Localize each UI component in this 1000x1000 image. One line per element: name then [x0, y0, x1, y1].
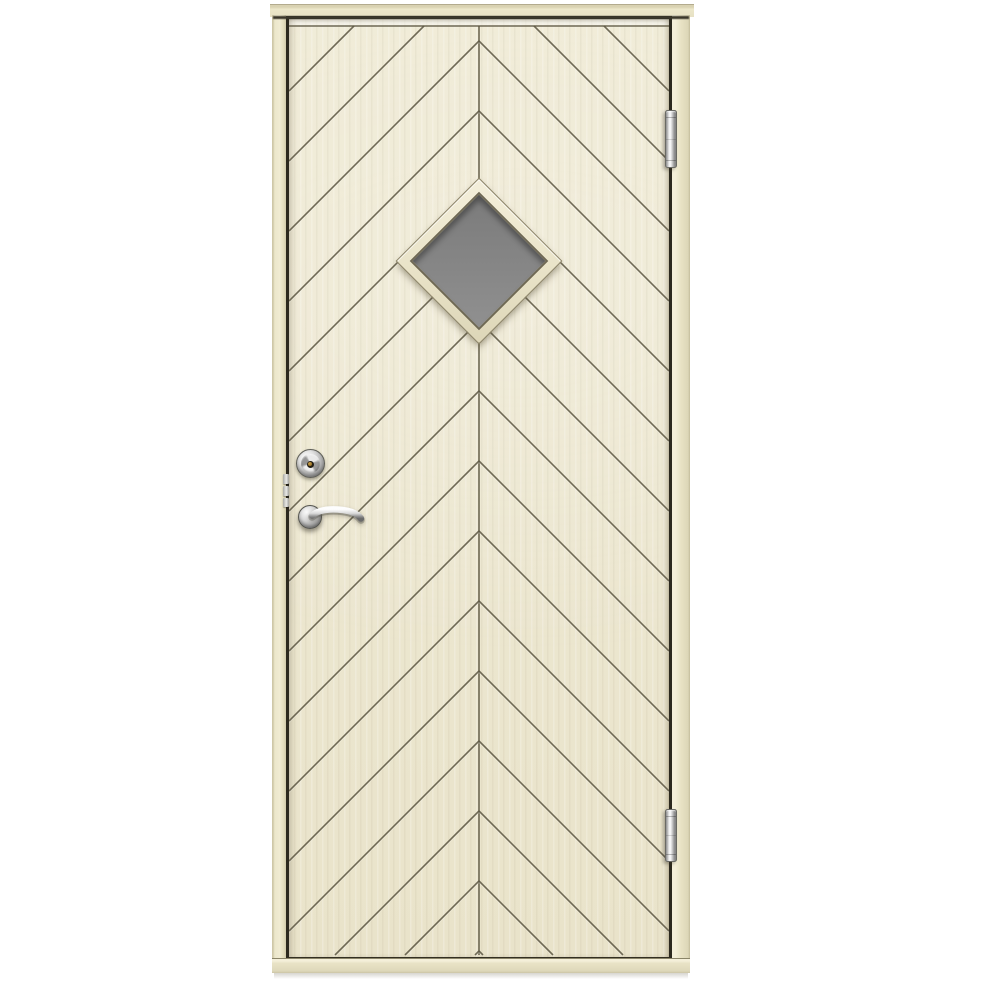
groove-line	[289, 322, 479, 512]
groove-line	[289, 531, 479, 721]
groove-line	[289, 461, 479, 651]
threshold-sill	[272, 958, 690, 973]
groove-line	[479, 532, 669, 722]
groove-line	[604, 26, 669, 91]
lever-handle	[283, 493, 373, 538]
groove-line	[289, 532, 479, 722]
chevron-groove-pattern	[289, 19, 669, 956]
product-photo-door	[0, 0, 1000, 1000]
groove-line	[289, 26, 424, 161]
floor-shadow	[274, 972, 688, 979]
groove-line	[289, 671, 479, 861]
groove-line	[479, 602, 669, 792]
lock-cylinder-face	[301, 454, 320, 473]
groove-line	[289, 601, 479, 791]
groove-line	[479, 742, 669, 932]
groove-line	[289, 741, 479, 931]
hinge-bottom	[665, 809, 677, 862]
groove-line	[289, 42, 479, 232]
groove-line	[479, 322, 669, 512]
edge-plate-segment	[283, 474, 289, 484]
groove-line	[289, 391, 479, 581]
groove-line	[479, 811, 623, 955]
keyhole-brass-pin	[308, 462, 312, 466]
groove-line	[289, 27, 354, 92]
lock-cylinder	[296, 449, 325, 478]
groove-line	[289, 462, 479, 652]
groove-line	[289, 672, 479, 862]
groove-line	[289, 602, 479, 792]
groove-line	[479, 42, 669, 232]
groove-line	[335, 811, 479, 955]
groove-line	[604, 27, 669, 92]
groove-line	[479, 741, 669, 931]
groove-line	[289, 392, 479, 582]
hinge-top	[665, 110, 677, 168]
groove-line	[479, 462, 669, 652]
groove-line	[479, 671, 669, 861]
groove-line	[405, 881, 479, 955]
groove-line	[479, 41, 669, 231]
groove-line	[534, 27, 669, 162]
groove-line	[479, 672, 669, 862]
groove-line	[289, 41, 479, 231]
groove-line	[289, 742, 479, 932]
groove-line	[479, 881, 553, 955]
groove-line	[289, 321, 479, 511]
groove-line	[289, 27, 424, 162]
groove-line	[479, 601, 669, 791]
groove-line	[289, 26, 354, 91]
groove-line	[479, 531, 669, 721]
groove-line	[479, 461, 669, 651]
groove-line	[479, 321, 669, 511]
groove-line	[534, 26, 669, 161]
keyhole	[307, 461, 315, 469]
groove-line	[479, 392, 669, 582]
groove-line	[479, 391, 669, 581]
